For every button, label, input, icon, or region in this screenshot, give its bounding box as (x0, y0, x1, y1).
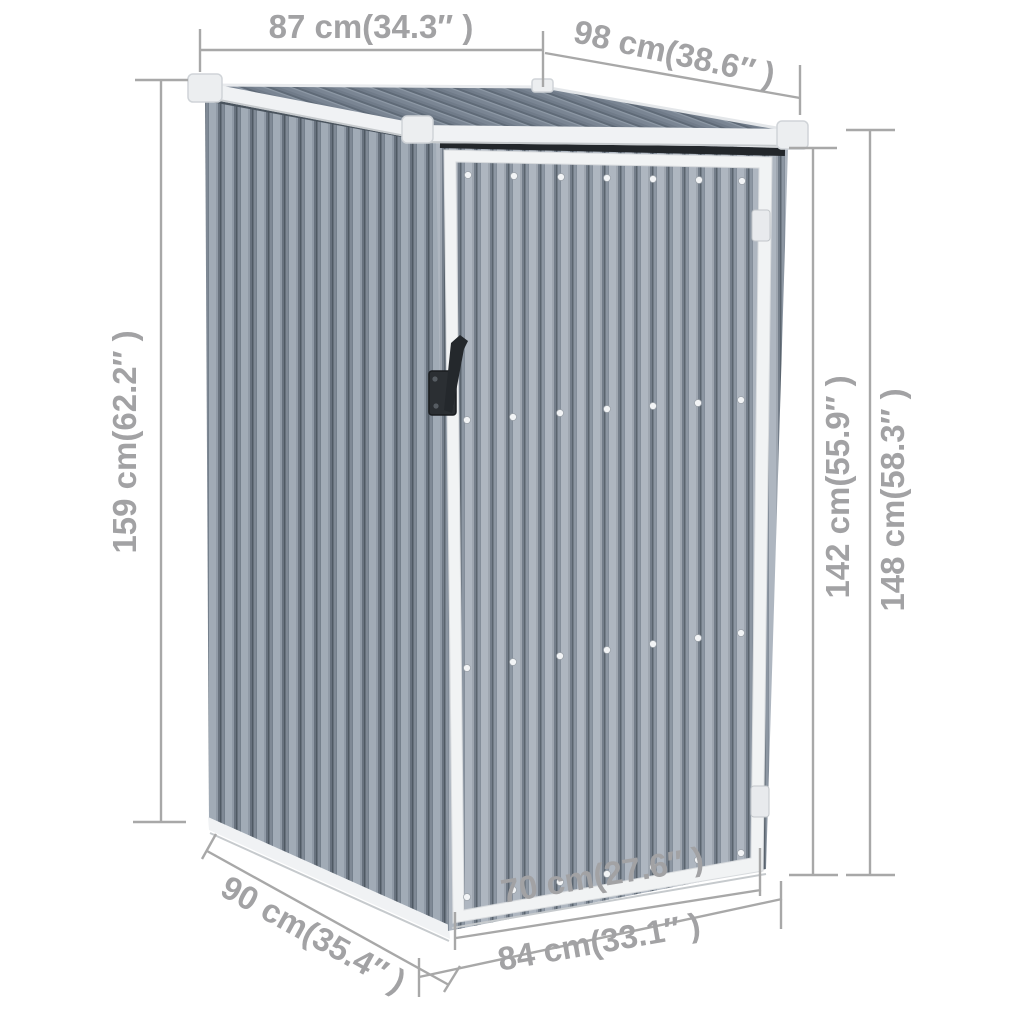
shed-dimension-diagram: 87 cm(34.3″ ) 98 cm(38.6″ ) 159 cm(62.2″… (0, 0, 1024, 1024)
dim-roof-back-width: 87 cm(34.3″ ) (200, 8, 543, 87)
roof-corner-cap-front-right (777, 121, 808, 149)
door-panel (456, 162, 759, 910)
handle-bolt (432, 376, 437, 381)
dim-back-height: 159 cm(62.2″ ) (106, 80, 188, 822)
dim-label-front-height: 148 cm(58.3″ ) (874, 388, 911, 611)
dim-label-roof-slope-depth: 98 cm(38.6″ ) (571, 13, 779, 93)
shed-illustration (188, 74, 808, 941)
handle-bolt (433, 403, 438, 408)
door-hinge-bottom (751, 786, 769, 817)
dim-label-door-height: 142 cm(55.9″ ) (819, 375, 856, 598)
roof-back-edge (204, 85, 544, 87)
diagram-canvas: 87 cm(34.3″ ) 98 cm(38.6″ ) 159 cm(62.2″… (0, 0, 1024, 1024)
left-wall (205, 92, 448, 931)
door-hinge-top (752, 210, 770, 241)
roof-corner-cap-back-left (188, 74, 222, 102)
dim-door-height: 142 cm(55.9″ ) (789, 148, 856, 875)
dim-label-roof-back-width: 87 cm(34.3″ ) (269, 8, 474, 45)
roof-corner-cap-front-left (402, 116, 433, 143)
dim-label-back-height: 159 cm(62.2″ ) (106, 330, 143, 553)
